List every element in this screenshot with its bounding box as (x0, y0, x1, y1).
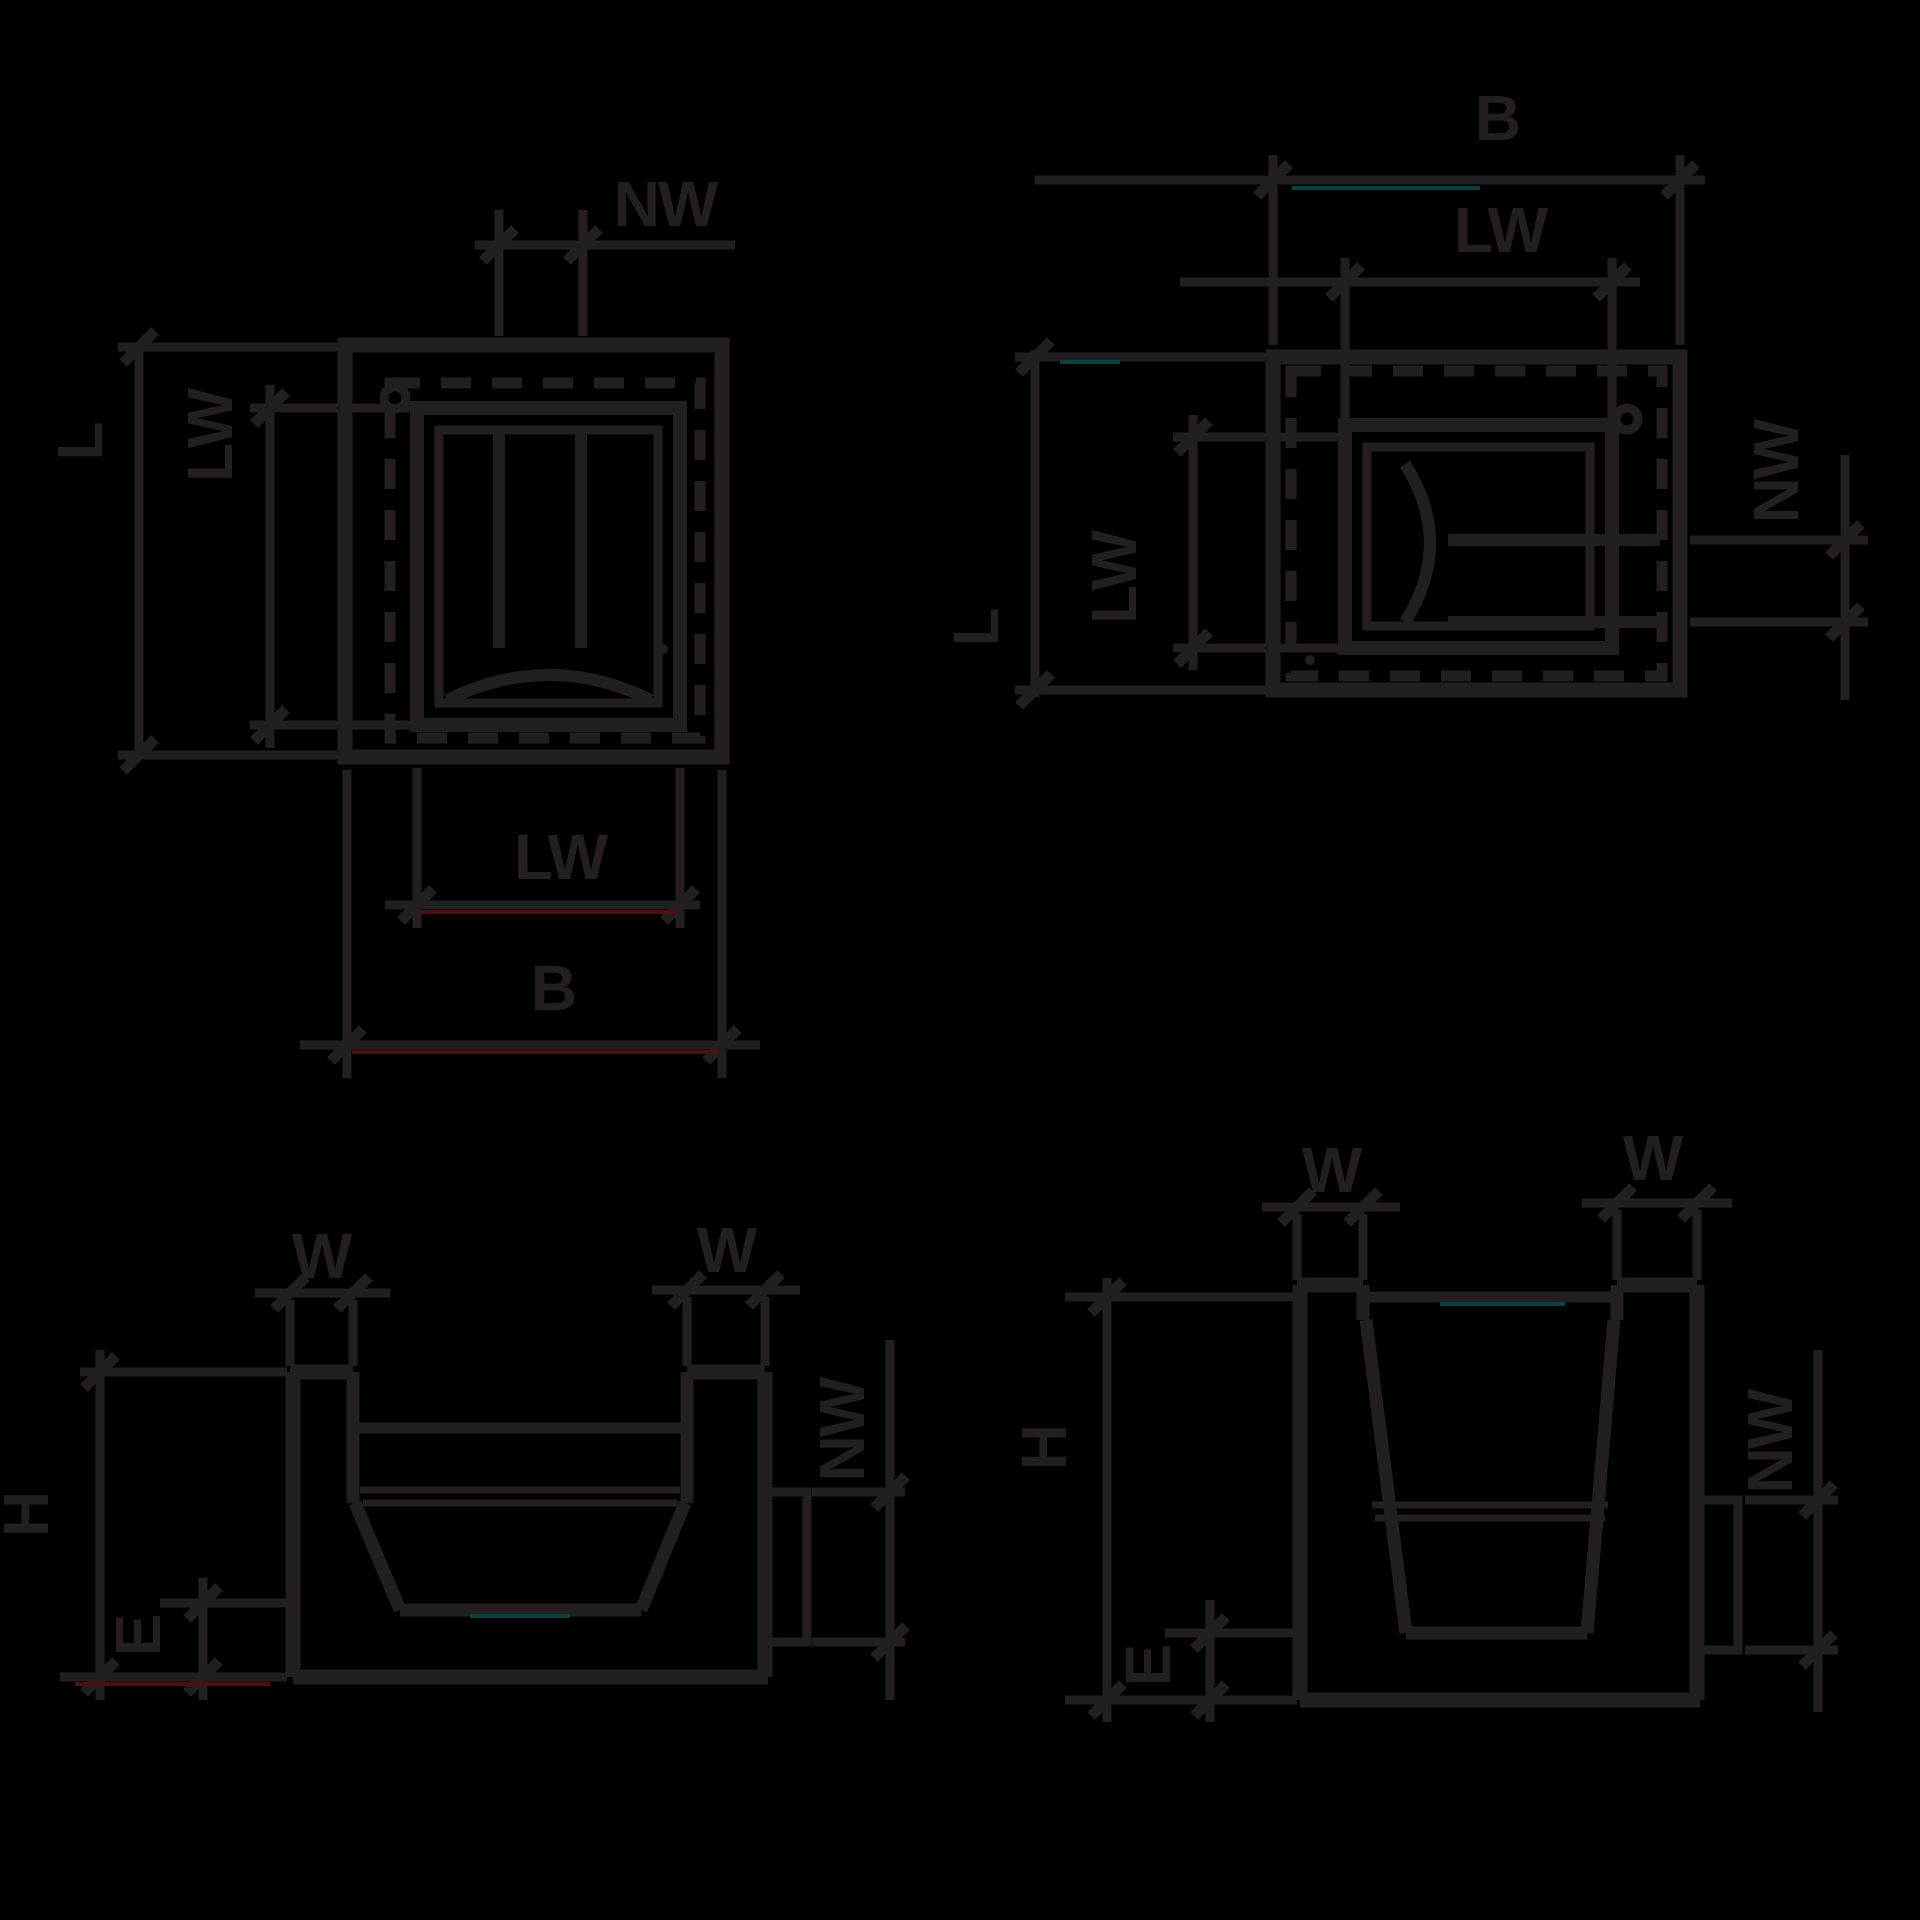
extension-line (1745, 1500, 1838, 1650)
label-nw: NW (614, 168, 719, 240)
dimension-w-left: W (1262, 1134, 1400, 1280)
drain-dot (658, 644, 668, 654)
label-l: L (44, 423, 116, 461)
grate-slot (1448, 540, 1660, 622)
drain-dot (1305, 655, 1315, 665)
top-left-plan-view: NW L LW LW B (44, 168, 760, 1078)
label-e: E (102, 1615, 174, 1656)
label-h: H (0, 1493, 62, 1537)
fixing-bolt-icon (1616, 408, 1638, 430)
dimension-nw-right: NW (1690, 418, 1868, 700)
bottom-left-cross-section: W W H E NW (0, 1214, 906, 1700)
extension-line (1065, 1297, 1297, 1700)
technical-drawing-canvas: NW L LW LW B (0, 0, 1920, 1920)
extension-line (1015, 357, 1268, 690)
extension-line (347, 770, 722, 1078)
label-lw: LW (1078, 529, 1150, 624)
drawing-sheet: NW L LW LW B (0, 0, 1920, 1920)
label-lw: LW (514, 821, 609, 893)
bottom-right-cross-section: W W H E NW (1008, 1122, 1838, 1722)
label-b: B (531, 952, 575, 1024)
dimension-nw-right: NW (806, 1340, 906, 1700)
label-nw: NW (806, 1376, 878, 1481)
dimension-lw-left: LW (174, 385, 415, 748)
label-lw: LW (174, 387, 246, 482)
dimension-lw-left: LW (1078, 415, 1340, 670)
label-w: W (292, 1220, 353, 1292)
grate-frame-inner (439, 430, 658, 703)
cavity-slant-left (355, 1503, 400, 1610)
cavity-slant-right (1587, 1320, 1614, 1633)
label-w: W (1623, 1122, 1684, 1194)
outlet-arc (447, 675, 651, 700)
label-nw: NW (1734, 1388, 1806, 1493)
label-l: L (940, 609, 1012, 647)
dimension-nw-right: NW (1734, 1350, 1838, 1712)
dimension-nw-top: NW (475, 168, 735, 336)
label-w: W (1302, 1134, 1363, 1206)
dimension-lw-top: LW (1180, 194, 1640, 418)
cavity-slant-right (641, 1503, 685, 1610)
dimension-e: E (102, 1578, 290, 1700)
dimension-b-top: B (1035, 82, 1705, 345)
label-lw: LW (1454, 194, 1549, 266)
outlet-arc (1405, 464, 1430, 622)
dimension-w-right: W (1582, 1122, 1732, 1280)
label-e: E (1112, 1645, 1184, 1686)
top-right-plan-view: B LW L LW NW (940, 82, 1868, 706)
dimension-b-bottom: B (300, 770, 760, 1078)
label-h: H (1008, 1426, 1080, 1470)
dimension-w-right: W (652, 1214, 800, 1366)
label-nw: NW (1740, 418, 1812, 523)
dimension-lw-bottom: LW (385, 768, 700, 928)
grate-slot (499, 430, 581, 648)
cavity-slant-left (1366, 1320, 1406, 1633)
dimension-w-left: W (255, 1220, 390, 1366)
extension-line (1173, 437, 1340, 648)
label-b: B (1475, 82, 1519, 154)
label-w: W (697, 1214, 758, 1286)
